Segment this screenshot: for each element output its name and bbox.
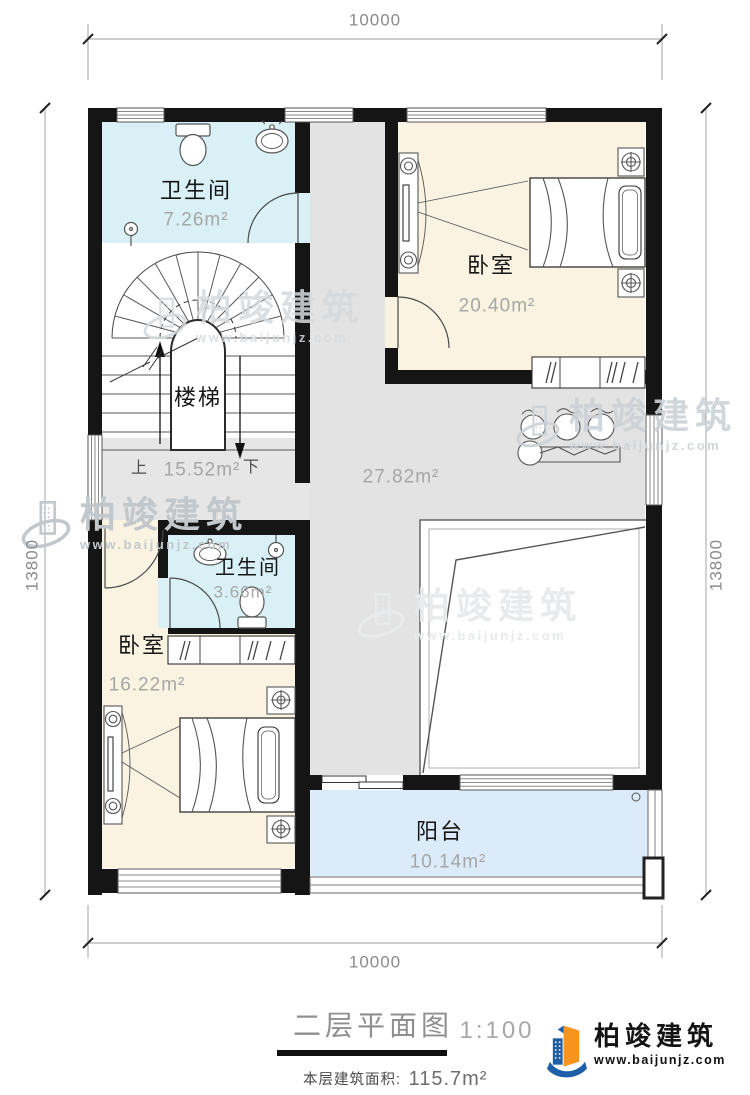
room-label-bedroom-1: 卧室 (467, 255, 515, 277)
floor-area-label: 本层建筑面积: (303, 1073, 401, 1088)
room-label-balcony: 阳台 (416, 821, 464, 843)
dimension-left: 13800 (24, 539, 41, 591)
void-area (420, 520, 648, 777)
room-area-bathroom-2: 3.66m² (214, 584, 273, 601)
room-area-bathroom-1: 7.26m² (163, 211, 228, 230)
floor-plan-drawing (0, 0, 750, 1095)
company-logo: 柏竣建筑 www.baijunjz.com (546, 1022, 726, 1080)
room-area-stairs: 15.52m² (164, 461, 241, 480)
room-label-bedroom-2: 卧室 (118, 635, 166, 657)
dimension-right: 13800 (708, 539, 725, 591)
floor-area-value: 115.7m² (409, 1069, 488, 1089)
sliding-door (322, 776, 403, 789)
dimension-top: 10000 (349, 12, 401, 29)
drawing-scale: 1:100 (459, 1019, 534, 1043)
dimension-bottom: 10000 (349, 954, 401, 971)
room-label-bathroom-1: 卫生间 (160, 180, 232, 202)
company-logo-icon (546, 1022, 588, 1080)
room-label-stairs: 楼梯 (174, 387, 222, 409)
room-area-balcony: 10.14m² (410, 853, 487, 872)
room-area-bedroom-1: 20.40m² (459, 297, 536, 316)
title-underline (277, 1050, 447, 1056)
room-area-hall: 27.82m² (363, 468, 440, 487)
logo-brand-text: 柏竣建筑 (594, 1022, 726, 1052)
drawing-title: 二层平面图 (293, 1012, 453, 1040)
stairs-up-label: 上 (131, 461, 147, 477)
room-area-bedroom-2: 16.22m² (109, 676, 186, 695)
logo-site-text: www.baijunjz.com (594, 1053, 726, 1067)
floor-plan-page: 柏竣建筑 www.baijunjz.com 柏竣建筑 www.baijunjz.… (0, 0, 750, 1095)
room-label-bathroom-2: 卫生间 (215, 558, 281, 578)
stairs-down-label: 下 (243, 460, 259, 476)
